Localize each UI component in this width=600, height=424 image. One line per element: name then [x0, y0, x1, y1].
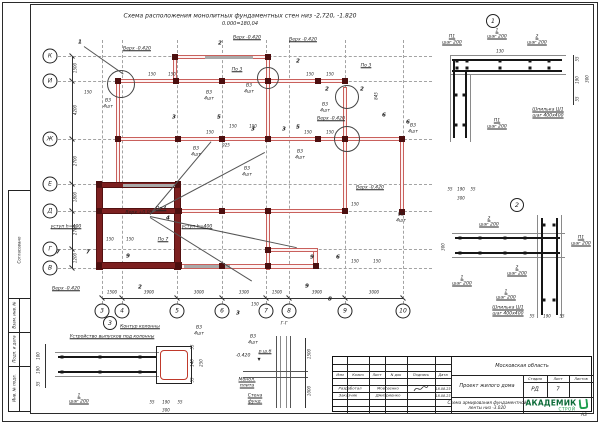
- annotation: 150: [229, 125, 237, 130]
- stamp-sheet-value: 7: [556, 386, 560, 393]
- axis-bubble-10: 10: [396, 304, 411, 319]
- strip-inv: Инв. № подл.: [12, 374, 17, 402]
- annotation: 55: [149, 401, 154, 406]
- drawing-sheet: Согласовано Взам. инв. № Подп. и дата Ин…: [0, 0, 600, 424]
- annotation: 2: [296, 59, 300, 66]
- format-label: А3: [581, 413, 587, 419]
- stamp-col-ndok: N док: [391, 372, 402, 376]
- stamp-col-podpis: Подпись: [413, 372, 429, 376]
- strip-soglasovano: Согласовано: [17, 237, 22, 264]
- annotation: П1 шаг 200: [442, 35, 462, 46]
- stamp-col-list: Лист: [372, 372, 381, 376]
- annotation: 150: [206, 131, 214, 136]
- annotation: 150: [106, 238, 114, 243]
- annotation: 9: [126, 254, 130, 261]
- annotation: По 3: [232, 67, 243, 73]
- brand-logo-icon: [579, 399, 589, 410]
- annotation: 300: [162, 409, 170, 414]
- annotation: Контур колонны: [120, 324, 160, 330]
- annotation: В3 4шт: [244, 84, 254, 95]
- annotation: 845: [375, 92, 380, 100]
- annotation: 150: [304, 131, 312, 136]
- wall-segment: [178, 209, 348, 213]
- strip-vzam: Взам. инв. №: [12, 301, 17, 328]
- annotation: 55: [576, 56, 581, 61]
- annotation: В3 4шт: [242, 167, 252, 178]
- annotation: 300: [457, 197, 465, 202]
- annotation: Верх +0.05: [125, 210, 152, 216]
- annotation: 1 шаг 200: [69, 394, 89, 405]
- wall-segment: [116, 137, 405, 141]
- annotation: В3 4шт: [320, 103, 330, 114]
- annotation: 55: [559, 315, 564, 320]
- annotation: 150: [84, 91, 92, 96]
- axis-bubble-7: 7: [259, 304, 274, 319]
- annotation: 55: [576, 96, 581, 101]
- annotation: 3: [282, 127, 286, 134]
- annotation: 55: [529, 315, 534, 320]
- axis-bubble-Е: Е: [43, 177, 58, 192]
- stamp-col-data: Дата: [438, 372, 447, 376]
- grey-infill: [123, 184, 175, 187]
- annotation: 55: [447, 188, 452, 193]
- stamp-stage-value: РД: [531, 386, 539, 393]
- annotation: 190: [457, 188, 465, 193]
- axis-bubble-6: 6: [215, 304, 230, 319]
- annotation: 2: [325, 87, 329, 94]
- annotation: 2 шаг 200: [527, 35, 547, 46]
- annotation: 140: [191, 359, 196, 367]
- annotation: По 7: [158, 237, 169, 243]
- annotation: 8: [328, 297, 332, 304]
- annotation: 150: [351, 203, 359, 208]
- axis-bubble-5: 5: [170, 304, 185, 319]
- annotation: 9: [310, 255, 314, 262]
- annotation: 2: [360, 87, 364, 94]
- bottom-dimension-line: [102, 298, 403, 299]
- annotation: 150: [168, 73, 176, 78]
- stamp-project: Проект жилого дома: [459, 383, 514, 389]
- annotation: 3: [172, 115, 176, 122]
- annotation: 150: [351, 260, 359, 265]
- annotation: Г-Г: [281, 321, 288, 327]
- annotation: 2 шаг 200: [507, 266, 527, 277]
- axis-bubble-4: 4: [115, 304, 130, 319]
- axis-bubble-8: 8: [282, 304, 297, 319]
- annotation: По 4: [156, 206, 167, 212]
- annotation: 55: [191, 344, 196, 349]
- dimension-value: 3900: [144, 291, 154, 296]
- wall-segment: [266, 248, 318, 252]
- annotation: 100: [37, 352, 42, 360]
- dimension-value: 3900: [312, 291, 322, 296]
- dimension-value: 1500: [74, 63, 79, 73]
- annotation: 190: [543, 315, 551, 320]
- annotation: уступ h=400: [51, 224, 82, 230]
- stamp-date-1: 18.08.23: [435, 386, 450, 390]
- annotation: 150: [326, 73, 334, 78]
- annotation: 250: [200, 359, 205, 367]
- annotation: 190: [37, 366, 42, 374]
- stamp-sheets-label: Листов: [574, 376, 587, 380]
- annotation: Верх -0.420: [233, 35, 261, 41]
- annotation: 150: [251, 303, 259, 308]
- annotation: 2 шаг 200: [479, 217, 499, 228]
- annotation: 1: [78, 40, 82, 47]
- annotation: Верх -0.420: [52, 286, 80, 292]
- annotation: 55: [37, 381, 42, 386]
- dimension-value: 4200: [74, 105, 79, 115]
- stamp-role-1: Разработал: [338, 386, 361, 391]
- sheet-title-line2: 0.000=180,04: [222, 21, 258, 27]
- axis-bubble-К: К: [43, 49, 58, 64]
- dimension-value: 1200: [74, 253, 79, 263]
- stamp-sheet-label: Лист: [553, 376, 562, 380]
- axis-bubble-9: 9: [338, 304, 353, 319]
- column-contour: [160, 350, 188, 380]
- stamp-drawing-title: Схема армирования фундаментной ленты низ…: [448, 400, 527, 411]
- thick-wall-segment: [96, 182, 103, 270]
- annotation: П1 шаг 200: [571, 236, 591, 247]
- axis-bubble-В: В: [43, 261, 58, 276]
- title-block: Изм Колич Лист N док Подпись Дата Разраб…: [332, 356, 592, 412]
- signature-icon: [413, 385, 429, 393]
- brand-sub: СТРОЙ: [559, 406, 576, 411]
- annotation: 5: [296, 125, 300, 132]
- annotation: 55: [191, 377, 196, 382]
- annotation: 2: [218, 41, 222, 48]
- annotation: 3: [236, 311, 240, 318]
- thick-wall-segment: [96, 262, 182, 269]
- stamp-col-kolich: Колич: [352, 372, 364, 376]
- annotation: 150: [306, 73, 314, 78]
- wall-segment: [116, 79, 347, 83]
- annotation: Верх -0.420: [123, 46, 151, 52]
- sheet-title-line1: Схема расположения монолитных фундаментн…: [124, 13, 357, 20]
- stamp-col-izm: Изм: [336, 372, 343, 376]
- annotation: 130: [496, 50, 504, 55]
- dimension-value: 1500: [107, 291, 117, 296]
- grid-line-horizontal: [58, 249, 432, 250]
- annotation: р.ш.б: [259, 349, 272, 355]
- annotation: 1000: [308, 386, 313, 396]
- wall-segment: [400, 137, 404, 215]
- annotation: В3 4шт: [103, 99, 113, 110]
- axis-bubble-Ж: Ж: [43, 132, 58, 147]
- annotation: Монол. плита: [239, 378, 256, 389]
- annotation: -0.420: [236, 353, 251, 359]
- annotation: 150: [126, 238, 134, 243]
- detail-bubble: 1: [486, 14, 500, 28]
- annotation: Шпилька Ш1 шаг 400х400: [532, 108, 563, 119]
- annotation: 7: [86, 250, 90, 257]
- annotation: уступ h=400: [182, 224, 213, 230]
- annotation: 1 шаг 200: [496, 290, 516, 301]
- annotation: 55: [470, 188, 475, 193]
- annotation: 190: [576, 76, 581, 84]
- annotation: 9: [305, 284, 309, 291]
- grey-infill: [205, 56, 253, 59]
- annotation: В3 4шт: [396, 213, 406, 224]
- annotation: 6: [336, 255, 340, 262]
- annotation: 6: [406, 120, 410, 127]
- annotation: В3 4шт: [204, 91, 214, 102]
- axis-bubble-Д: Д: [43, 204, 58, 219]
- annotation: 2: [138, 285, 142, 292]
- stamp-role-2: Заказчик: [339, 393, 357, 398]
- stamp-name-2: Дмитриенко: [376, 393, 401, 398]
- annotation: Стена фунд.: [248, 394, 263, 405]
- stamp-region: Московская область: [495, 363, 549, 369]
- annotation: Верх -0.420: [289, 37, 317, 43]
- annotation: Шпилька Ш1 шаг 400х400: [492, 306, 523, 317]
- annotation: Верх -0.420: [356, 185, 384, 191]
- stamp-stage-label: Стадия: [528, 376, 542, 380]
- thick-wall-segment: [174, 182, 181, 270]
- dimension-value: 2700: [74, 156, 79, 166]
- dimension-value: 3000: [369, 291, 379, 296]
- annotation: 6: [382, 113, 386, 120]
- annotation: 190: [162, 401, 170, 406]
- annotation: В3 4шт: [194, 326, 204, 337]
- annotation: По 3: [361, 63, 372, 69]
- stamp-date-2: 18.08.23: [435, 393, 450, 397]
- annotation: 4: [166, 216, 170, 223]
- annotation: Верх -0.420: [317, 116, 345, 122]
- stamp-name-1: Мовсеенко: [377, 386, 399, 391]
- annotation: 150: [148, 73, 156, 78]
- annotation: 55: [177, 401, 182, 406]
- annotation: 1500: [308, 349, 313, 359]
- annotation: 7: [56, 250, 60, 257]
- annotation: 3: [251, 127, 255, 134]
- annotation: 300: [442, 243, 447, 251]
- annotation: Устройство выпусков под колонны: [70, 334, 155, 340]
- annotation: 300: [586, 75, 591, 83]
- strip-podp: Подп. и дата: [12, 335, 17, 362]
- annotation: П1 шаг 200: [487, 119, 507, 130]
- annotation: 150: [373, 260, 381, 265]
- dimension-value: 1800: [74, 192, 79, 202]
- dimension-value: 1500: [272, 291, 282, 296]
- annotation: 1 шаг 200: [452, 276, 472, 287]
- dimension-value: 3300: [239, 291, 249, 296]
- dimension-value: 3000: [194, 291, 204, 296]
- detail-bubble: 2: [510, 198, 524, 212]
- annotation: В3 4шт: [295, 150, 305, 161]
- annotation: 150: [326, 131, 334, 136]
- detail-bubble: 3: [103, 316, 117, 330]
- annotation: В3 4шт: [191, 147, 201, 158]
- wall-segment: [266, 209, 270, 270]
- annotation: ▼: [257, 358, 260, 363]
- axis-bubble-И: И: [43, 74, 58, 89]
- annotation: В3 4шт: [248, 335, 258, 346]
- annotation: 1 шаг 200: [487, 29, 507, 40]
- annotation: 925: [222, 144, 230, 149]
- annotation: 5: [217, 115, 221, 122]
